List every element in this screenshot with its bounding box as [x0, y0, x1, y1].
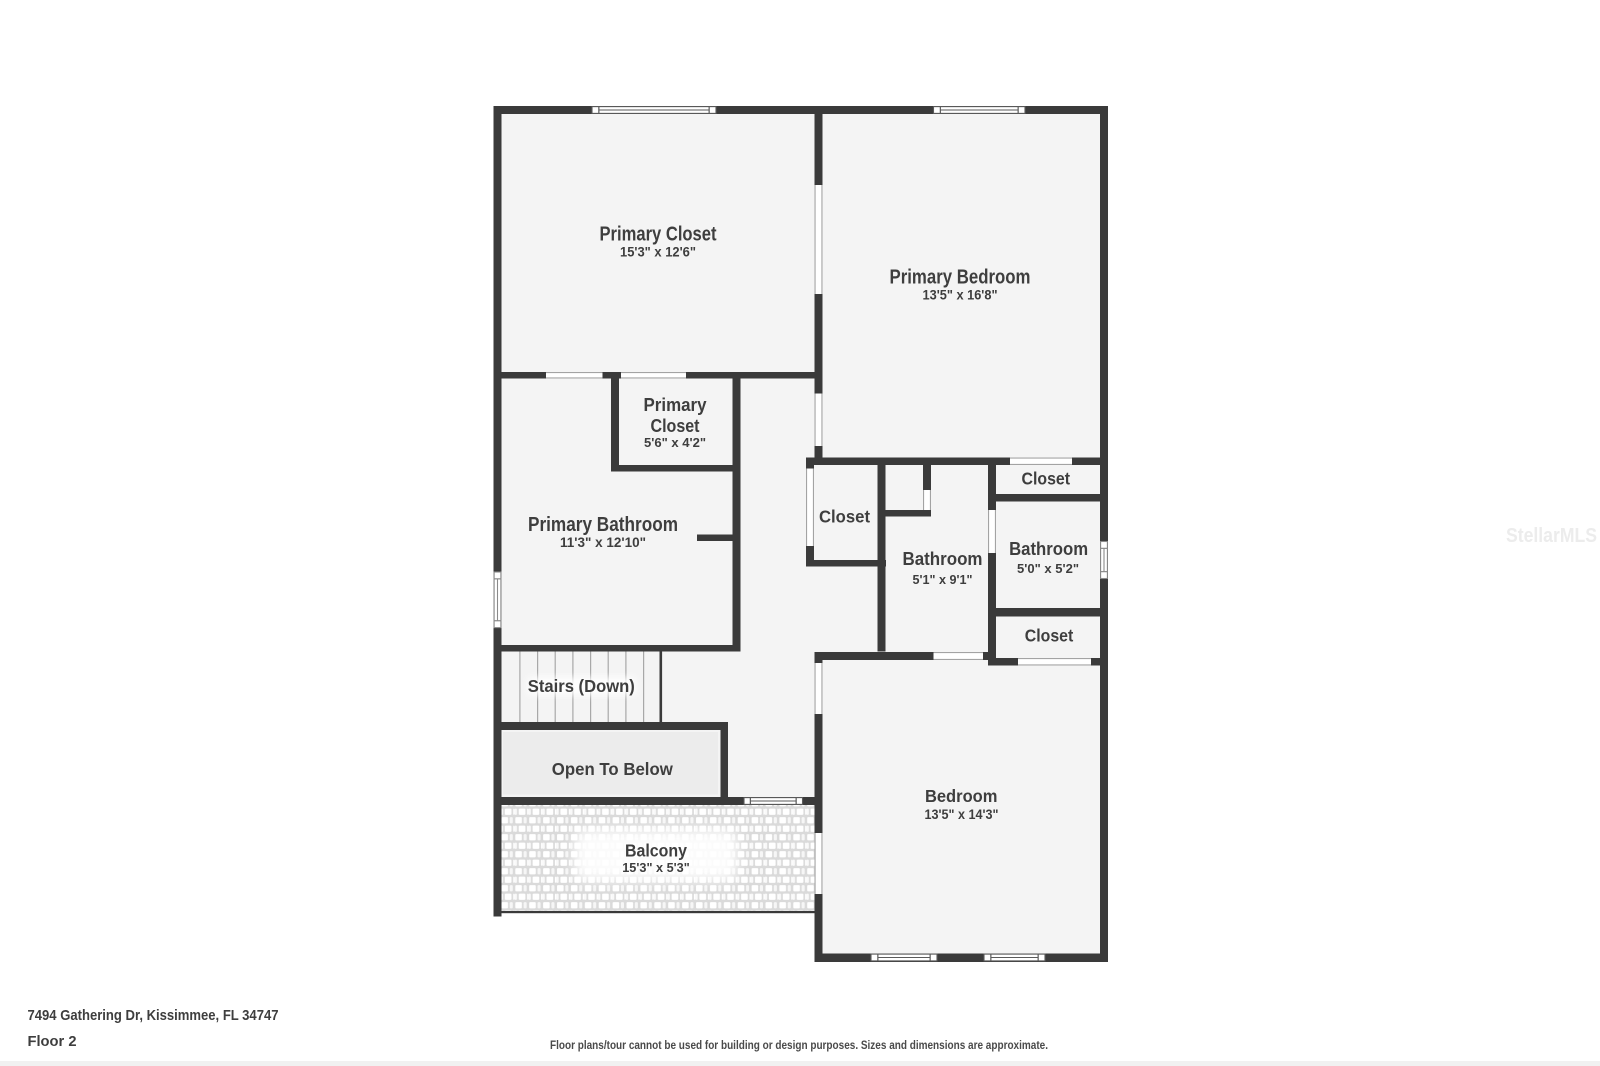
svg-text:5'0" x 5'2": 5'0" x 5'2"	[1017, 561, 1079, 576]
svg-text:11'3" x 12'10": 11'3" x 12'10"	[560, 535, 646, 550]
svg-text:Open To Below: Open To Below	[552, 759, 673, 779]
svg-text:Bathroom: Bathroom	[903, 549, 983, 569]
svg-text:Primary: Primary	[644, 394, 708, 415]
svg-text:7494 Gathering Dr, Kissimmee,: 7494 Gathering Dr, Kissimmee, FL 34747	[28, 1007, 279, 1024]
svg-text:Bathroom: Bathroom	[1009, 539, 1088, 559]
svg-text:5'6" x 4'2": 5'6" x 4'2"	[644, 435, 706, 450]
svg-text:Stairs (Down): Stairs (Down)	[528, 676, 635, 696]
svg-text:Primary Bathroom: Primary Bathroom	[528, 514, 678, 536]
svg-text:Closet: Closet	[819, 506, 870, 526]
svg-text:5'1" x 9'1": 5'1" x 9'1"	[913, 572, 973, 587]
svg-text:13'5" x 16'8": 13'5" x 16'8"	[923, 287, 998, 302]
svg-text:15'3" x 12'6": 15'3" x 12'6"	[620, 244, 696, 259]
svg-text:15'3" x 5'3": 15'3" x 5'3"	[622, 860, 690, 875]
svg-text:13'5" x 14'3": 13'5" x 14'3"	[925, 807, 999, 822]
svg-text:StellarMLS: StellarMLS	[1506, 524, 1597, 547]
svg-text:Closet: Closet	[651, 415, 700, 436]
svg-text:Primary Bedroom: Primary Bedroom	[890, 267, 1031, 289]
svg-text:Floor 2: Floor 2	[28, 1033, 77, 1050]
svg-text:Primary Closet: Primary Closet	[600, 224, 717, 246]
svg-text:Balcony: Balcony	[625, 841, 687, 861]
svg-text:Bedroom: Bedroom	[925, 786, 998, 806]
svg-text:Closet: Closet	[1022, 469, 1071, 489]
svg-text:Closet: Closet	[1025, 625, 1074, 645]
svg-text:Floor plans/tour cannot be use: Floor plans/tour cannot be used for buil…	[550, 1038, 1048, 1052]
